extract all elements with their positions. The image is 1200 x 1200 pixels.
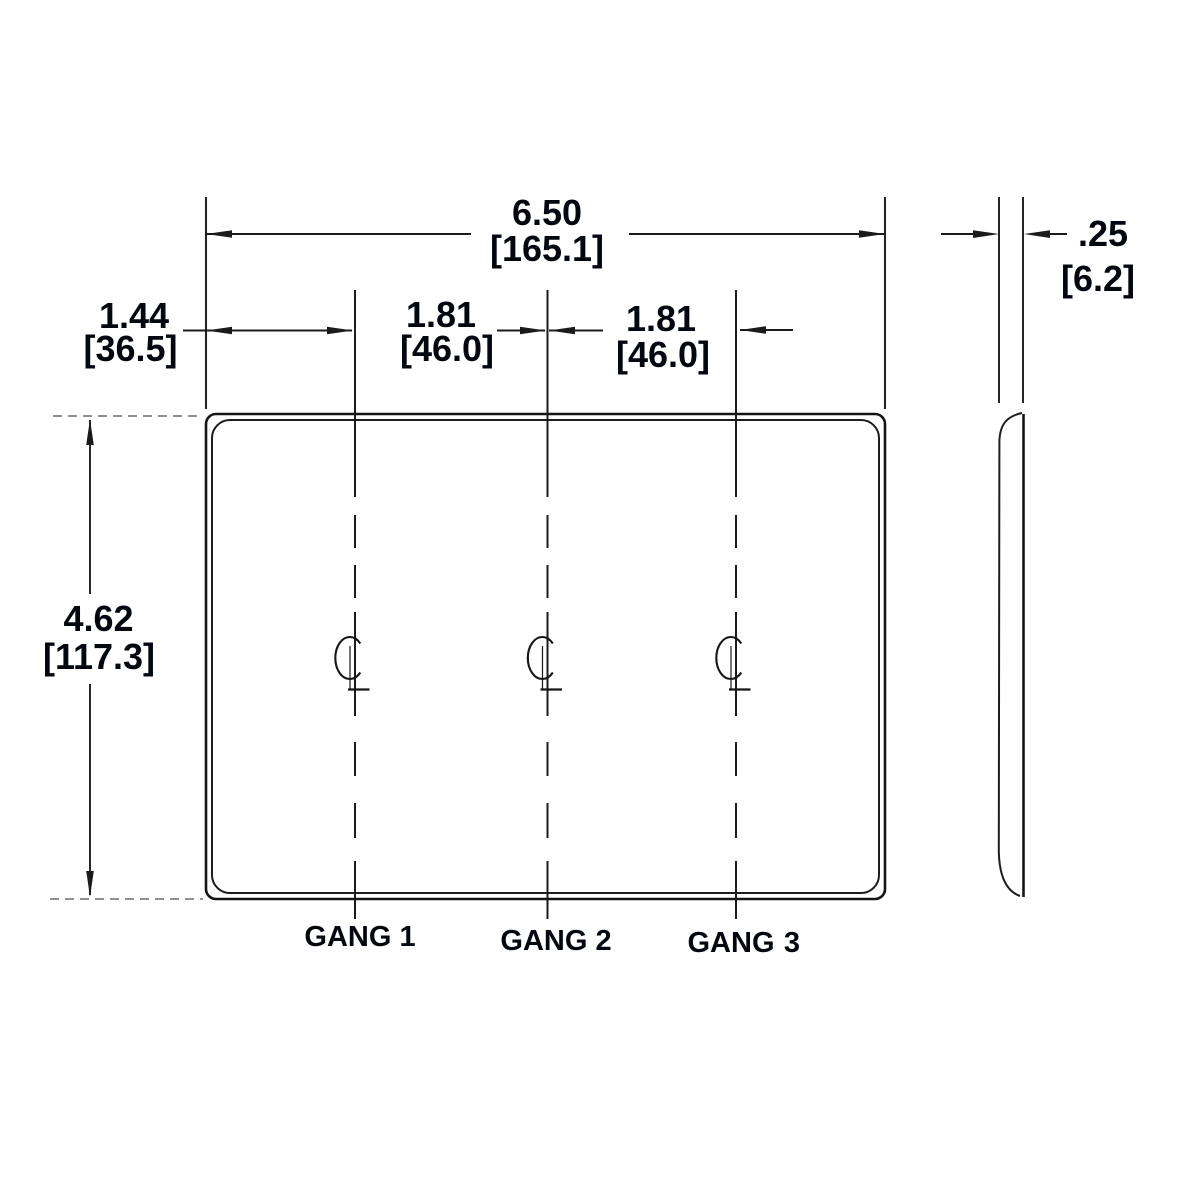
svg-text:6.50: 6.50 xyxy=(512,192,582,233)
svg-text:GANG 2: GANG 2 xyxy=(500,925,611,957)
svg-text:.25: .25 xyxy=(1078,213,1128,254)
svg-text:[117.3]: [117.3] xyxy=(43,636,155,677)
svg-text:[165.1]: [165.1] xyxy=(490,228,604,269)
svg-text:GANG: GANG xyxy=(688,927,775,959)
svg-text:[36.5]: [36.5] xyxy=(83,328,177,369)
svg-text:[46.0]: [46.0] xyxy=(616,334,710,375)
svg-text:4.62: 4.62 xyxy=(63,598,133,639)
svg-text:[6.2]: [6.2] xyxy=(1061,258,1135,299)
svg-text:[46.0]: [46.0] xyxy=(400,328,494,369)
svg-text:GANG 1: GANG 1 xyxy=(304,921,415,953)
svg-text:1.81: 1.81 xyxy=(626,298,696,339)
svg-text:3: 3 xyxy=(784,927,800,959)
